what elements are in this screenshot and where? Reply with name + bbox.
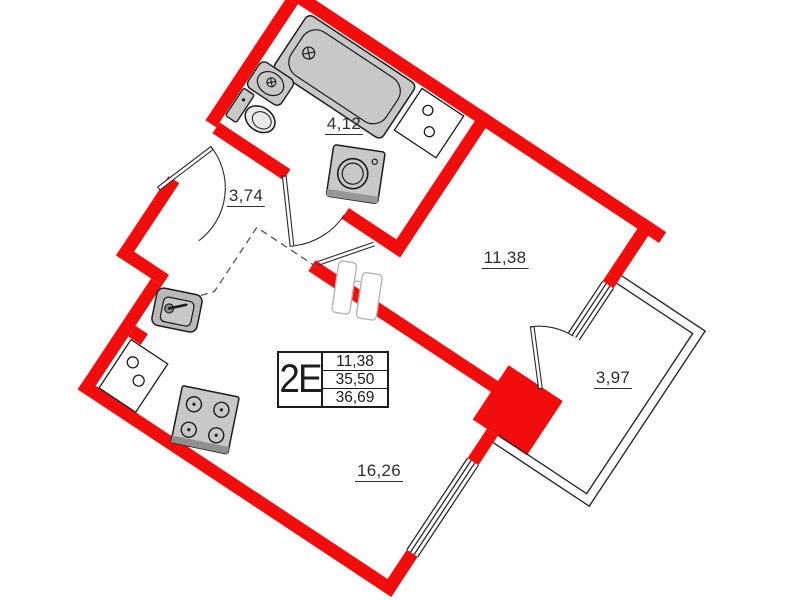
zone-boundary-dashed-line: [164, 209, 316, 364]
washing-machine-icon: [326, 145, 385, 204]
gas-stove-icon: [171, 386, 239, 454]
room-area-label-bedroom: 11,38: [482, 248, 529, 268]
unit-area-rows: 11,38 35,50 36,69: [321, 353, 387, 406]
room-area-label-kitchen-living: 16,26: [355, 461, 403, 481]
unit-total-area: 36,69: [323, 388, 387, 406]
bedroom-balcony-window: [568, 281, 613, 340]
floor-plan-drawing: [0, 0, 800, 600]
room-area-label-hallway: 3,74: [227, 186, 265, 206]
unit-room-area: 11,38: [323, 353, 387, 370]
room-area-label-balcony: 3,97: [594, 368, 632, 388]
floor-plan: 4,12 3,74 11,38 16,26 3,97 2E 11,38 35,5…: [0, 0, 800, 600]
room-area-label-bathroom: 4,12: [325, 114, 363, 134]
unit-living-area: 35,50: [323, 370, 387, 388]
unit-summary-table: 2E 11,38 35,50 36,69: [277, 351, 389, 408]
living-room-window: [407, 458, 479, 557]
unit-type-label: 2E: [281, 353, 320, 406]
kitchen-sink-icon: [151, 287, 204, 333]
